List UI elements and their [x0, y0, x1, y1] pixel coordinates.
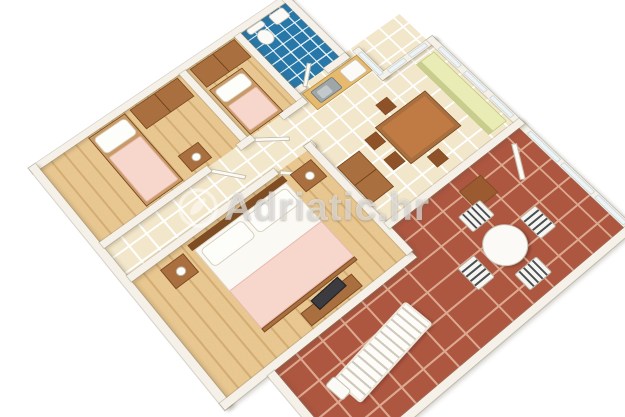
- floor-plan-render: Adriatic.hr: [0, 0, 625, 417]
- apartment-plan: [29, 0, 625, 417]
